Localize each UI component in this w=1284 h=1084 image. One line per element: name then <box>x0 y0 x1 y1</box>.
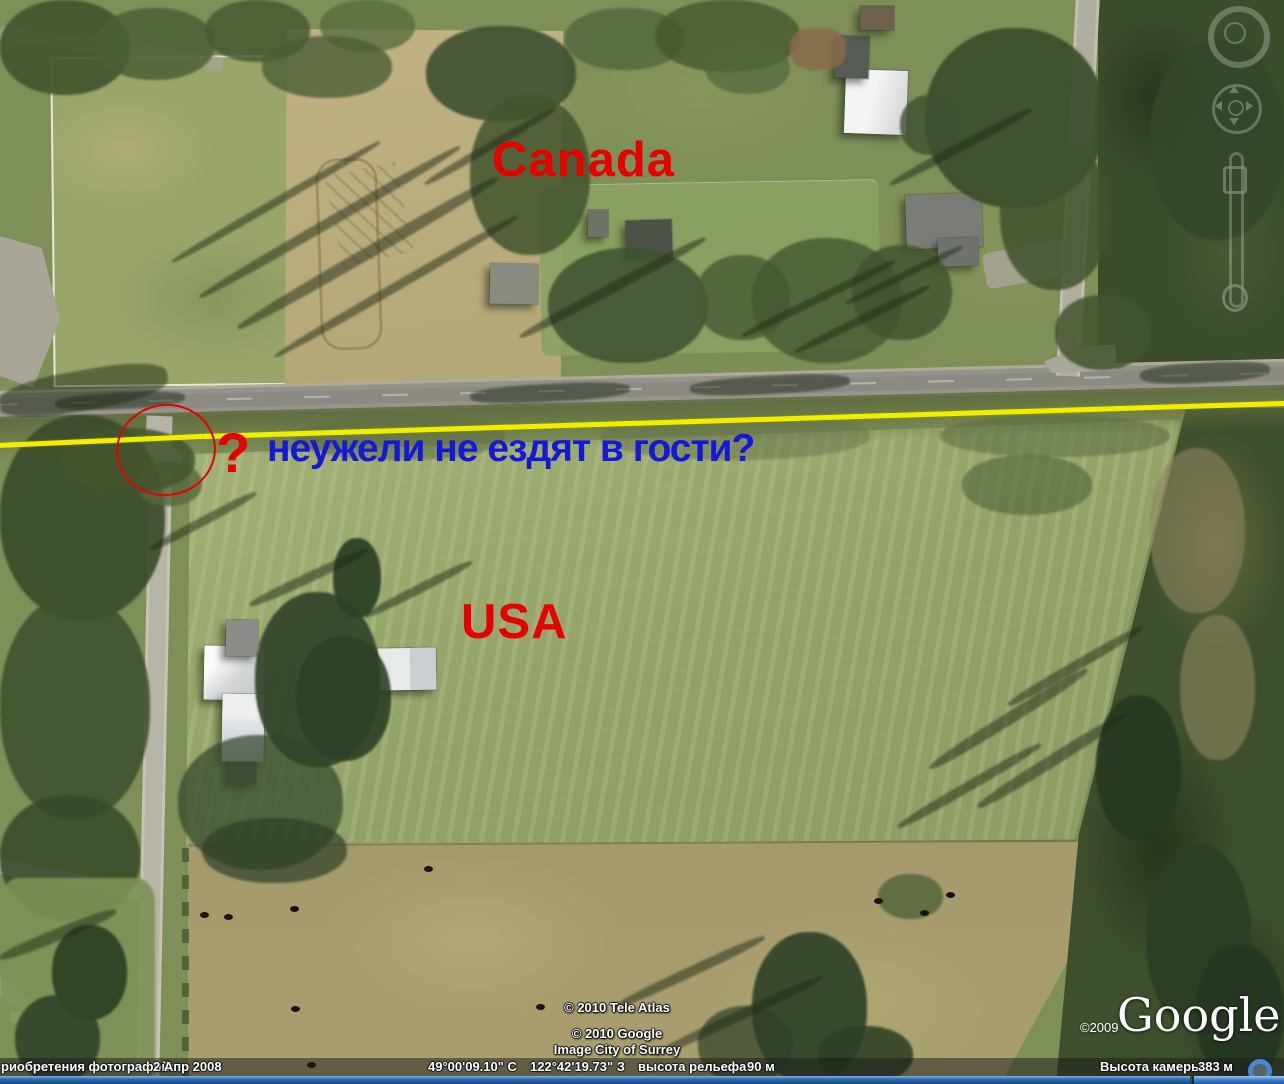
cow-dot <box>224 914 233 920</box>
tree-blob <box>1150 448 1245 613</box>
pan-center-icon[interactable] <box>1228 100 1244 116</box>
longitude-readout: 122°42'19.73" З <box>530 1059 625 1074</box>
tree-blob <box>202 818 347 883</box>
question-mark-label: ? <box>216 420 250 485</box>
camera-altitude-label: Высота камеры <box>1100 1059 1202 1074</box>
tree-blob <box>0 595 150 820</box>
copyright-tele-atlas: © 2010 Tele Atlas <box>527 1000 707 1015</box>
latitude-readout: 49°00'09.10" С <box>428 1059 517 1074</box>
tree-blob <box>705 42 790 94</box>
google-watermark: ©2009 Google <box>1080 994 1280 1064</box>
shadow-streak <box>1139 359 1270 386</box>
shadow-streak <box>690 372 851 398</box>
usa-label: USA <box>461 594 567 650</box>
tree-blob <box>1000 140 1110 290</box>
tree-blob <box>878 874 943 919</box>
tree-blob <box>962 455 1092 515</box>
cow-dot <box>291 1006 300 1012</box>
camera-altitude-value: 383 м <box>1198 1059 1233 1074</box>
cow-dot <box>920 910 929 916</box>
acquisition-date-label: риобретения фотографий: <box>1 1059 174 1074</box>
tree-blob <box>1096 695 1181 840</box>
window-edge-strip-right <box>1192 1076 1284 1084</box>
tree-blob <box>95 8 215 80</box>
tree-blob <box>1055 295 1150 370</box>
canada-label: Canada <box>492 132 675 188</box>
question-text-label: неужели не ездят в гости? <box>267 427 754 471</box>
pan-left-arrow-icon[interactable] <box>1215 101 1222 111</box>
tree-blob <box>262 36 392 98</box>
acquisition-date-value: 2 Апр 2008 <box>153 1059 222 1074</box>
tree-blob <box>296 636 391 761</box>
cow-dot <box>200 912 209 918</box>
shadow-streak <box>470 380 631 406</box>
shadow-streak <box>1006 623 1145 709</box>
compass-center-icon[interactable] <box>1224 22 1246 44</box>
google-earth-viewport[interactable]: Canada USA ? неужели не ездят в гости? ©… <box>0 0 1284 1084</box>
navigation-controls <box>1196 2 1282 312</box>
imagery-copyright: © 2010 Tele Atlas © 2010 Google Image Ci… <box>527 1000 707 1057</box>
terrain-elevation-value: 90 м <box>747 1059 775 1074</box>
zoom-slider-end[interactable] <box>1222 284 1248 312</box>
tree-blob <box>790 28 846 70</box>
pan-up-arrow-icon[interactable] <box>1229 86 1239 93</box>
cow-dot <box>874 898 883 904</box>
status-bar: риобретения фотографий: 2 Апр 2008 49°00… <box>0 1058 1284 1076</box>
cow-dot <box>424 866 433 872</box>
google-logo: Google <box>1117 988 1281 1042</box>
zoom-slider-handle[interactable] <box>1223 166 1247 194</box>
window-edge-strip <box>0 1076 1190 1084</box>
copyright-google: © 2010 Google <box>527 1026 707 1041</box>
terrain-elevation-label: высота рельефа <box>638 1059 746 1074</box>
tree-blob <box>940 415 1170 457</box>
cow-dot <box>290 906 299 912</box>
pan-right-arrow-icon[interactable] <box>1246 101 1253 111</box>
copyright-image-city: Image City of Surrey <box>527 1042 707 1057</box>
tree-blob <box>1180 615 1255 760</box>
pan-down-arrow-icon[interactable] <box>1229 118 1239 125</box>
google-watermark-year: ©2009 <box>1080 1020 1119 1035</box>
cow-dot <box>946 892 955 898</box>
